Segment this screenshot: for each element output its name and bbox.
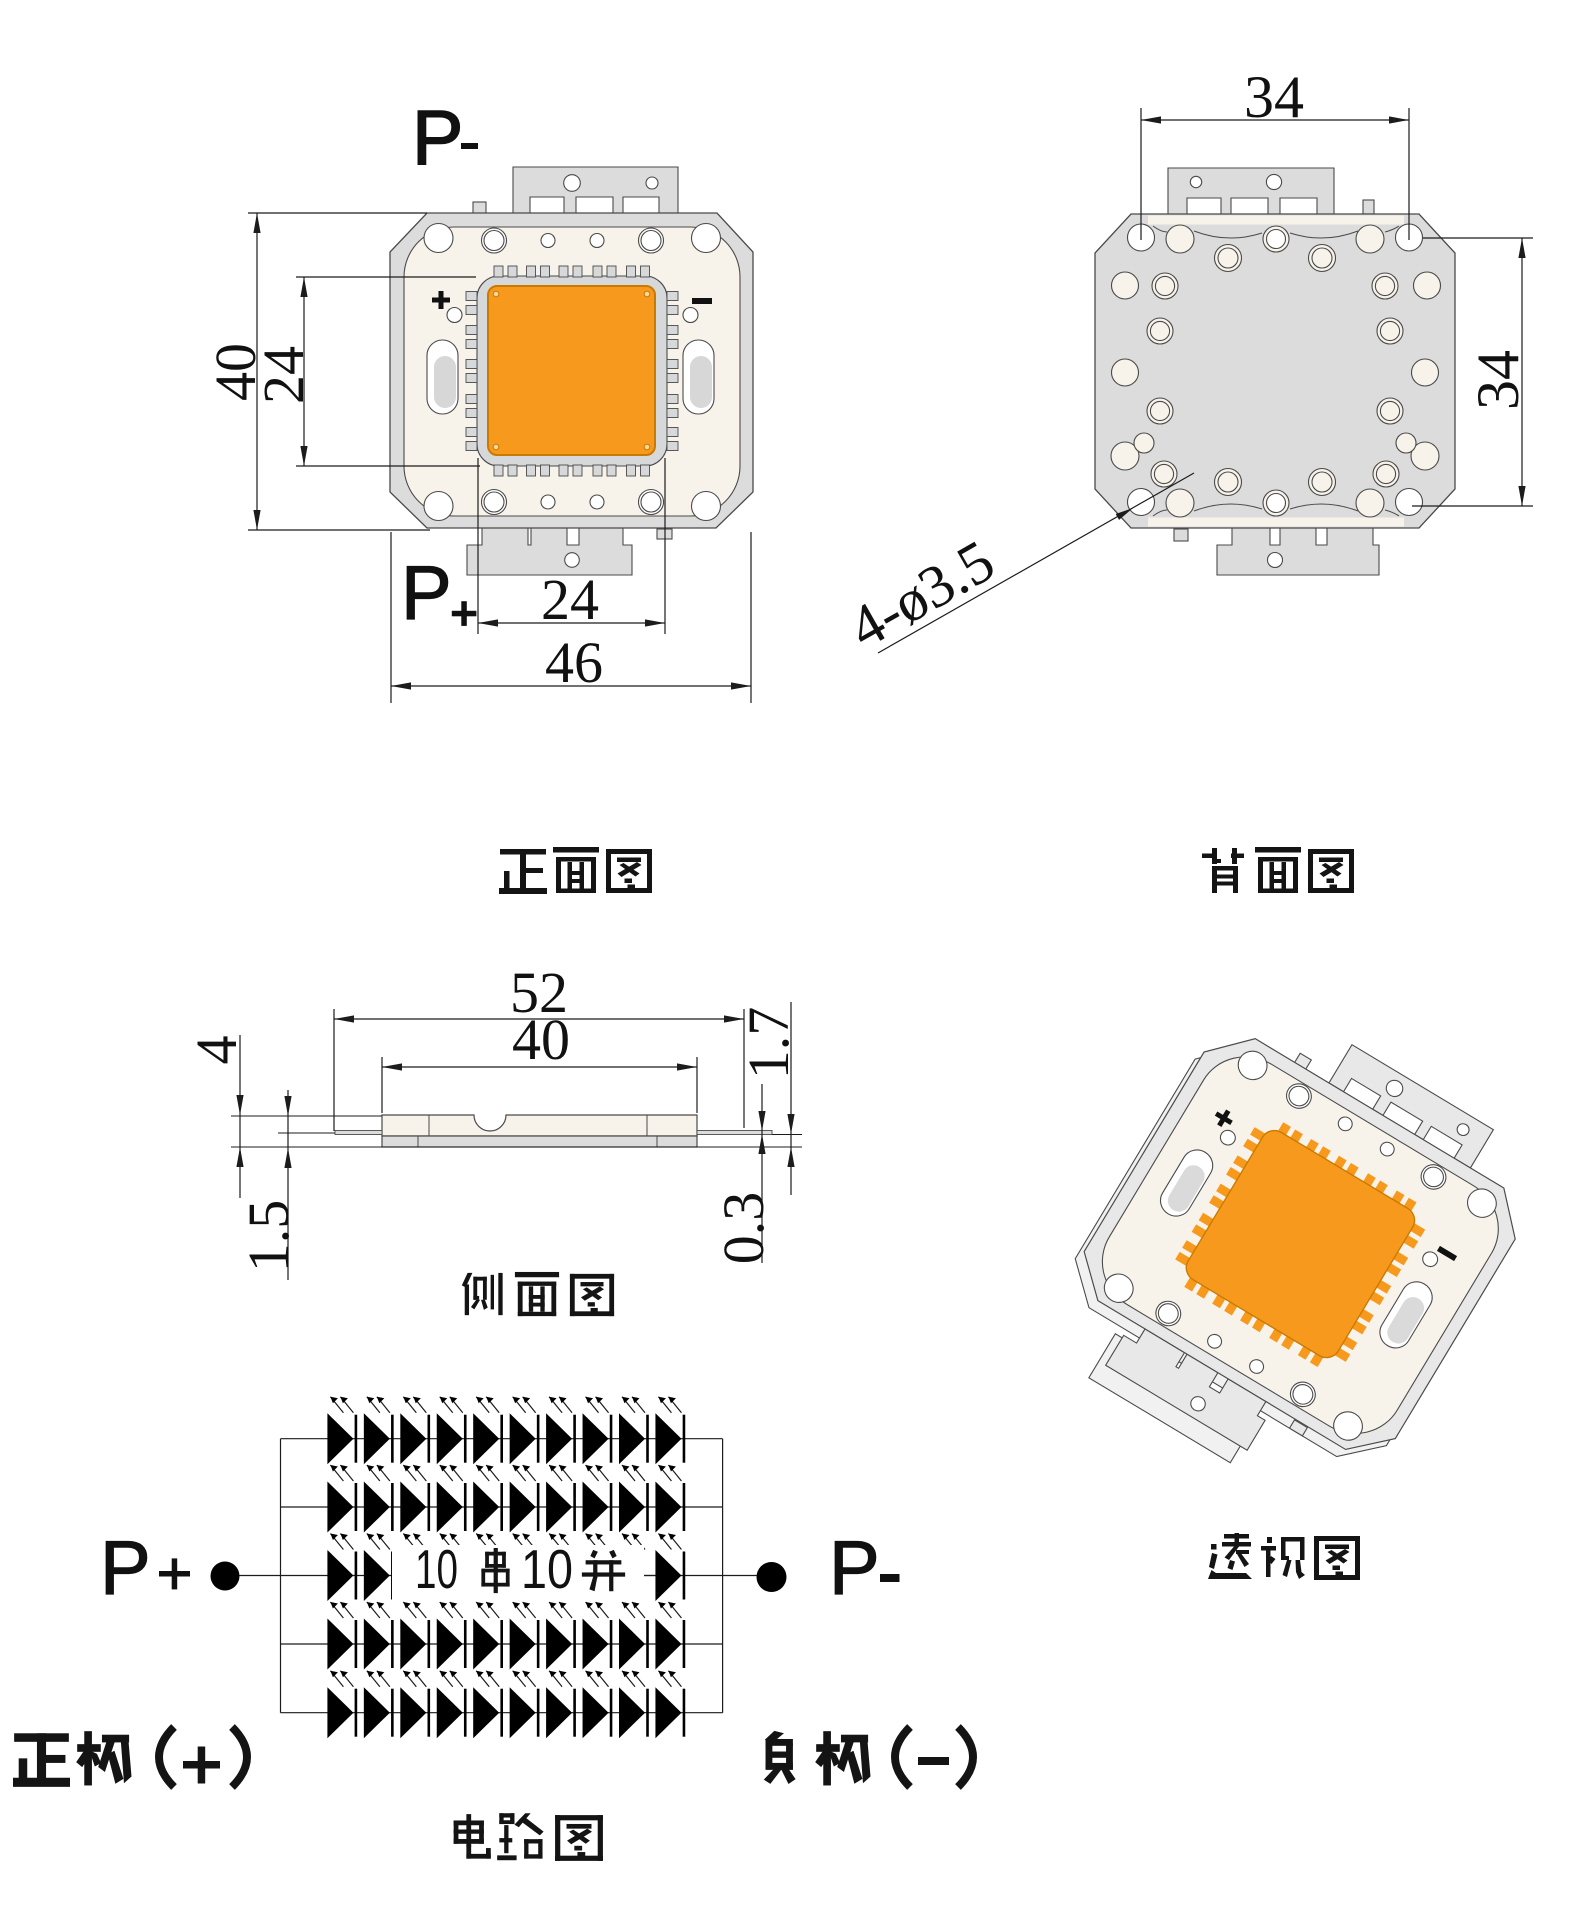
svg-text:P: P	[401, 551, 452, 636]
svg-text:0.3: 0.3	[711, 1192, 776, 1265]
svg-text:34: 34	[1244, 64, 1304, 130]
svg-text:1.5: 1.5	[236, 1200, 301, 1273]
svg-text:4: 4	[184, 1036, 249, 1065]
svg-text:P: P	[412, 95, 463, 181]
svg-text:1.7: 1.7	[736, 1007, 801, 1080]
svg-text:10: 10	[415, 1538, 458, 1600]
svg-text:40: 40	[512, 1007, 570, 1072]
svg-text:46: 46	[545, 630, 603, 695]
svg-text:P: P	[100, 1526, 151, 1611]
svg-text:10: 10	[521, 1538, 573, 1600]
svg-text:24: 24	[251, 346, 316, 404]
svg-text:4-ø3.5: 4-ø3.5	[838, 527, 1005, 661]
svg-text:34: 34	[1465, 350, 1531, 410]
svg-text:P: P	[829, 1526, 880, 1611]
svg-text:24: 24	[541, 567, 599, 632]
